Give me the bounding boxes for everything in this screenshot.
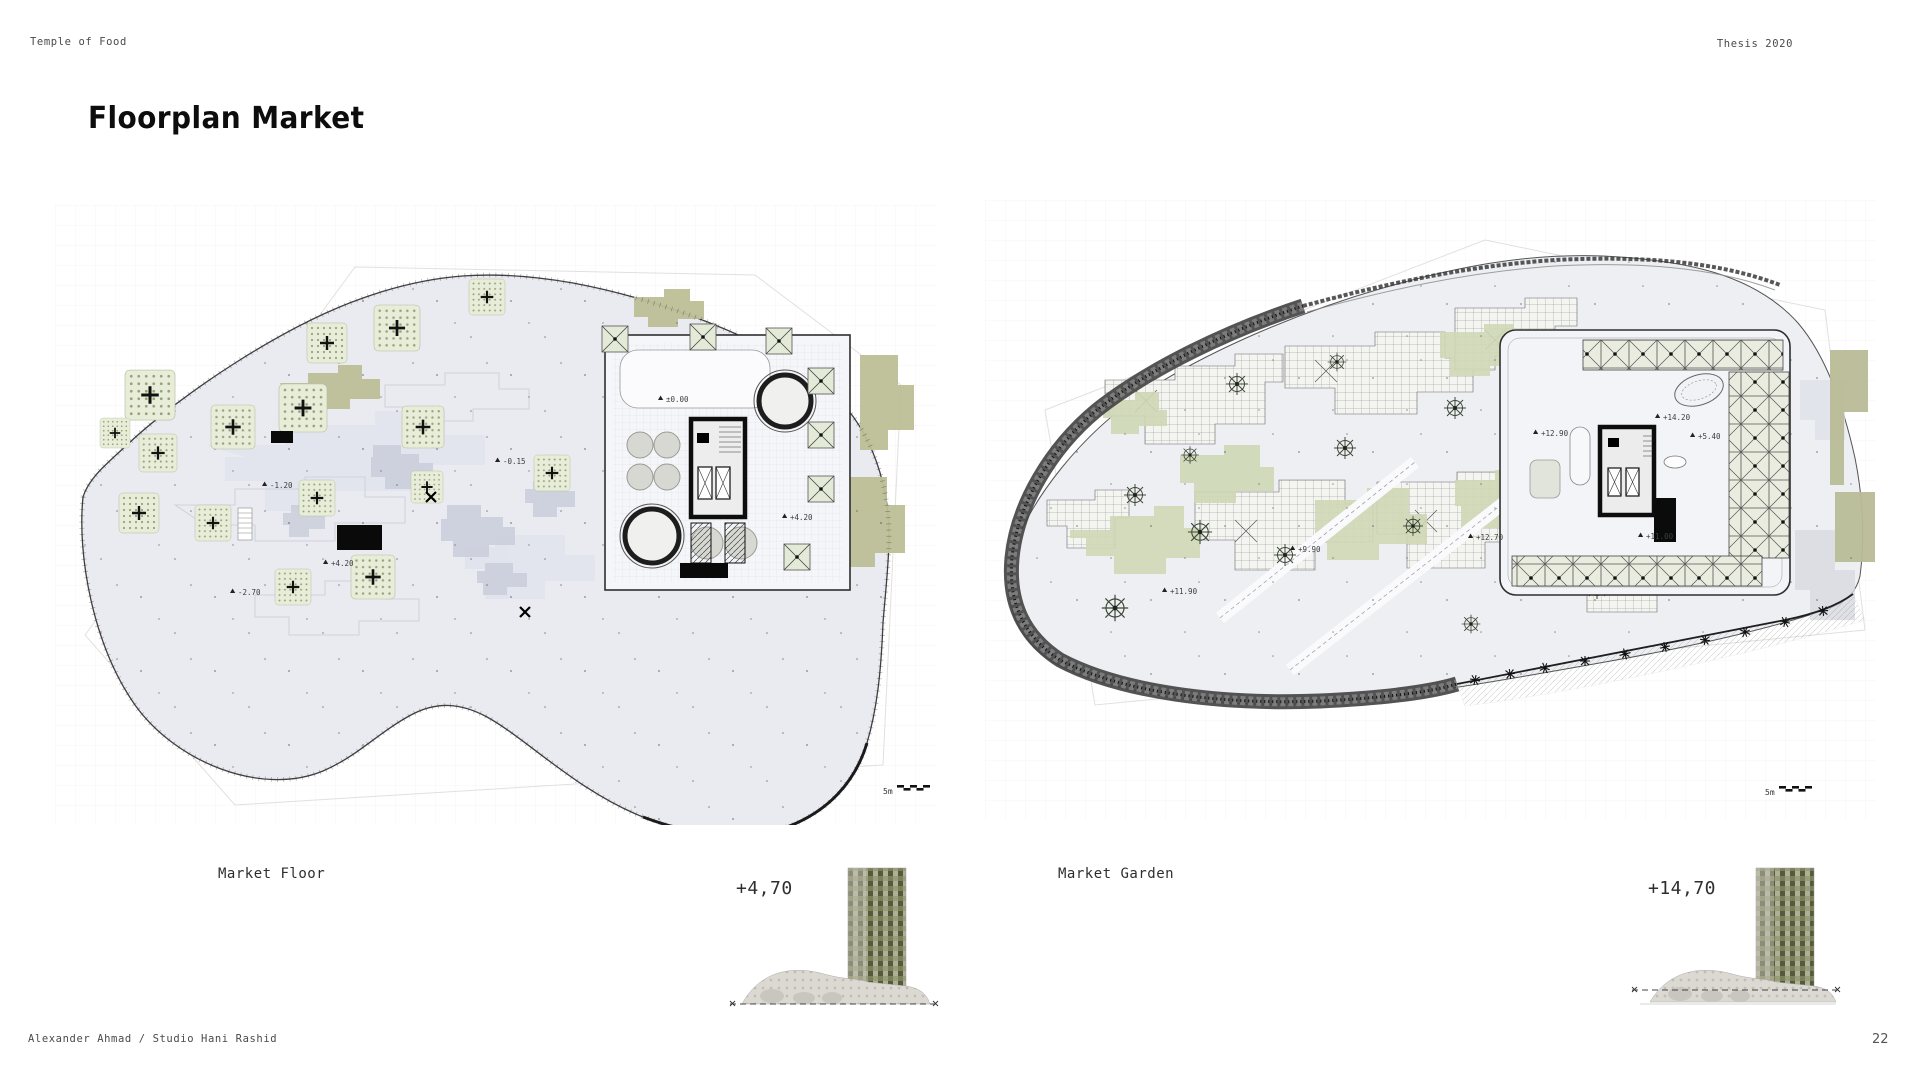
svg-text:+11.00: +11.00 <box>1646 532 1674 541</box>
svg-text:+4.20: +4.20 <box>790 513 813 522</box>
svg-text:+11.90: +11.90 <box>1170 587 1198 596</box>
market-building-plate <box>602 324 850 590</box>
market-building-plate <box>1500 330 1790 595</box>
plan-caption-right: Market Garden <box>1058 866 1174 882</box>
page-number: 22 <box>1872 1032 1889 1047</box>
svg-text:5m: 5m <box>1765 788 1775 797</box>
svg-text:±0.00: ±0.00 <box>666 395 689 404</box>
floorplan-market-garden: +12.90 +14.20 +5.40 +11.00 +12.70 +9.90 … <box>985 200 1875 820</box>
floorplan-market-floor: ±0.00 -0.15 -1.20 +4.20 -2.70 +4.20 5m <box>55 205 935 825</box>
svg-text:+9.90: +9.90 <box>1298 545 1321 554</box>
plan-caption-left: Market Floor <box>218 866 325 882</box>
footer-credit: Alexander Ahmad / Studio Hani Rashid <box>28 1033 277 1045</box>
svg-text:+12.70: +12.70 <box>1476 533 1504 542</box>
svg-text:+12.90: +12.90 <box>1541 429 1569 438</box>
building-section-thumbnail-right <box>1630 856 1842 1016</box>
header-year-label: Thesis 2020 <box>1717 38 1793 50</box>
svg-text:+4.20: +4.20 <box>331 559 354 568</box>
page-title: Floorplan Market <box>88 100 364 136</box>
stair <box>238 508 252 540</box>
building-section-thumbnail-left <box>728 856 940 1016</box>
svg-text:5m: 5m <box>883 787 893 796</box>
svg-text:+14.20: +14.20 <box>1663 413 1691 422</box>
svg-text:-1.20: -1.20 <box>270 481 293 490</box>
presentation-page: Temple of Food Thesis 2020 Floorplan Mar… <box>0 0 1920 1080</box>
svg-text:+5.40: +5.40 <box>1698 432 1721 441</box>
svg-text:-2.70: -2.70 <box>238 588 261 597</box>
svg-text:-0.15: -0.15 <box>503 457 526 466</box>
header-project-label: Temple of Food <box>30 36 127 48</box>
